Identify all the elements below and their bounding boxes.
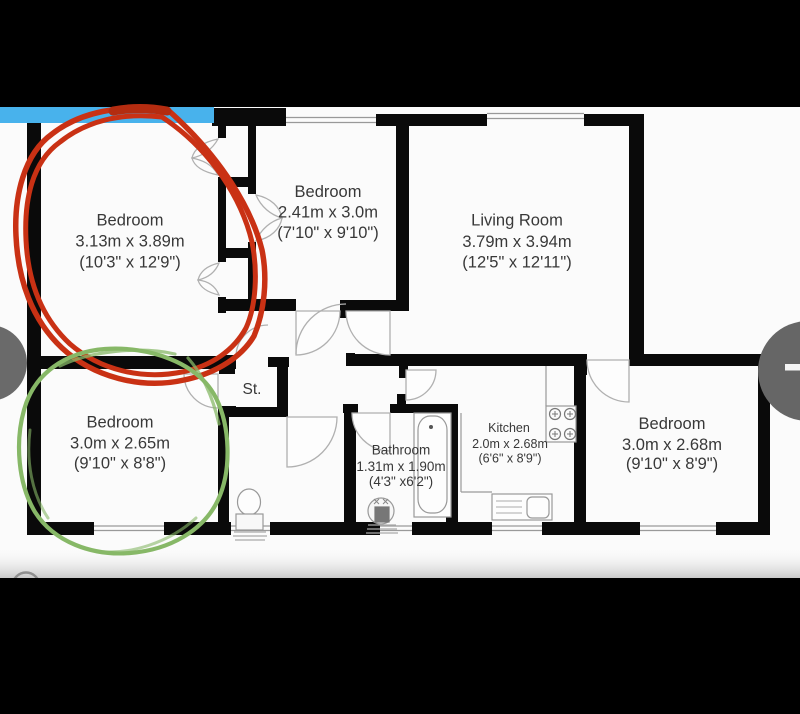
svg-text:3.79m x 3.94m: 3.79m x 3.94m <box>462 233 571 251</box>
svg-text:Bedroom: Bedroom <box>87 414 154 432</box>
svg-text:Bedroom: Bedroom <box>639 415 706 433</box>
svg-text:(10'3" x 12'9"): (10'3" x 12'9") <box>79 254 180 272</box>
svg-text:3.0m x 2.68m: 3.0m x 2.68m <box>622 436 722 454</box>
svg-text:(7'10" x 9'10"): (7'10" x 9'10") <box>277 224 378 242</box>
svg-text:2.41m x 3.0m: 2.41m x 3.0m <box>278 204 378 222</box>
svg-text:1.31m x 1.90m: 1.31m x 1.90m <box>356 459 445 474</box>
svg-text:Bedroom: Bedroom <box>295 183 362 201</box>
svg-text:Kitchen: Kitchen <box>488 421 530 435</box>
svg-text:2.0m x 2.68m: 2.0m x 2.68m <box>472 437 548 451</box>
svg-text:(9'10" x 8'8"): (9'10" x 8'8") <box>74 455 166 473</box>
svg-text:(4'3" x6'2"): (4'3" x6'2") <box>369 474 433 489</box>
svg-text:St.: St. <box>243 381 262 398</box>
svg-text:3.0m x 2.65m: 3.0m x 2.65m <box>70 435 170 453</box>
svg-text:(6'6" x 8'9"): (6'6" x 8'9") <box>479 452 542 466</box>
svg-text:(12'5" x 12'11"): (12'5" x 12'11") <box>462 254 571 272</box>
svg-text:(9'10" x 8'9"): (9'10" x 8'9") <box>626 455 718 473</box>
svg-text:Living Room: Living Room <box>471 212 563 230</box>
svg-text:Bedroom: Bedroom <box>97 212 164 230</box>
svg-text:Bathroom: Bathroom <box>372 443 431 458</box>
svg-text:3.13m x 3.89m: 3.13m x 3.89m <box>75 233 184 251</box>
